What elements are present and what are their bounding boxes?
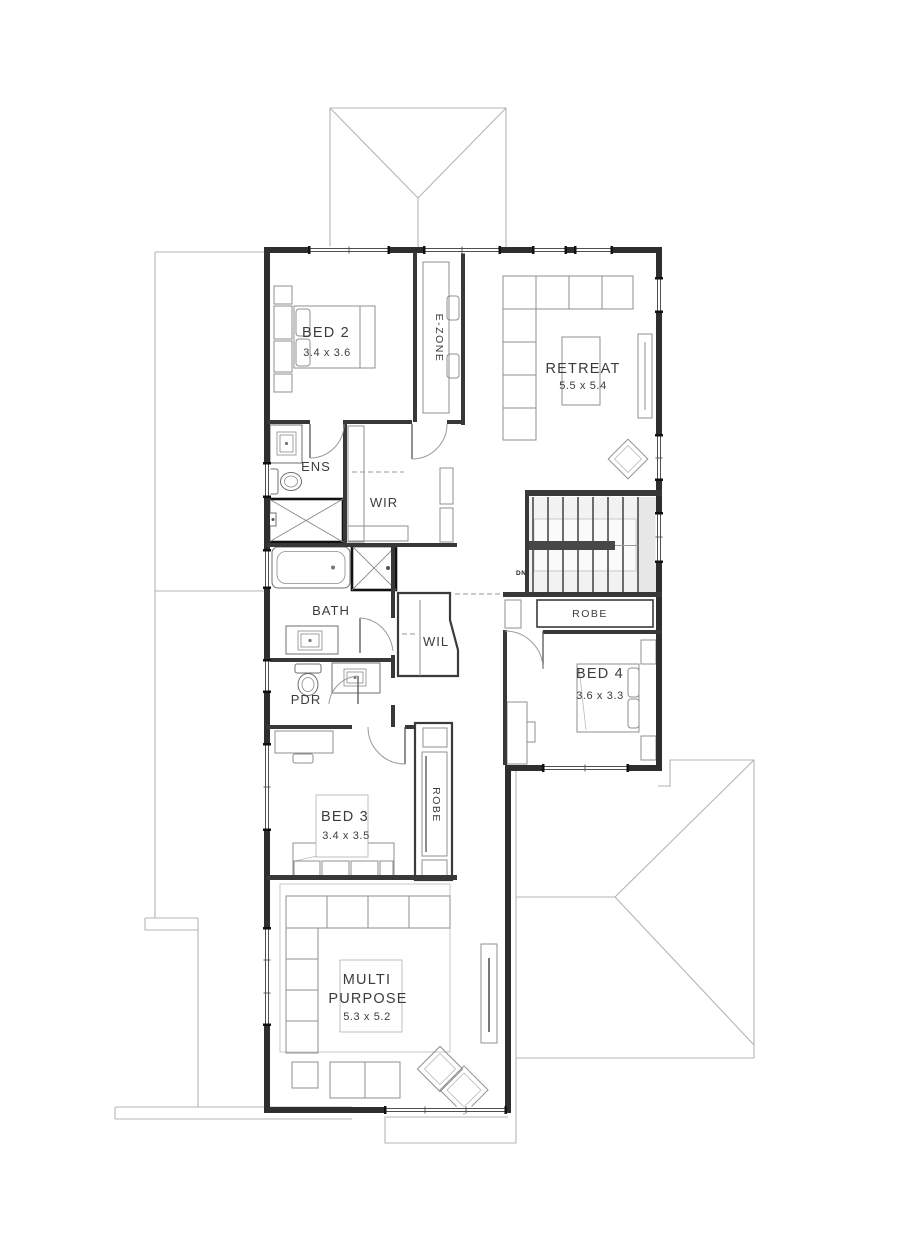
room-bed4 <box>507 640 656 764</box>
sofa-icon <box>503 276 633 309</box>
window-icon <box>655 277 663 313</box>
bed4-dims-label: 3.6 x 3.3 <box>576 690 624 702</box>
window-icon <box>263 659 271 693</box>
retreat-dims-label: 5.5 x 5.4 <box>559 380 607 392</box>
bed2-name-label: BED 2 <box>302 325 350 341</box>
robe-bed4-label: ROBE <box>572 608 608 620</box>
window-icon <box>542 764 629 772</box>
multi-dims-label: 5.3 x 5.2 <box>343 1011 391 1023</box>
window-icon <box>263 462 271 498</box>
desk-icon <box>507 702 527 764</box>
staircase: DN <box>516 497 656 592</box>
room-wir <box>348 426 453 542</box>
room-bath <box>272 546 396 654</box>
room-ens <box>267 425 343 542</box>
robe-bed3-label: ROBE <box>430 787 442 823</box>
bath-name-label: BATH <box>312 603 350 618</box>
desk-icon <box>275 731 333 753</box>
stairs-dn-label: DN <box>516 570 526 577</box>
window-icon <box>263 549 271 589</box>
window-icon <box>263 927 271 1026</box>
window-icon <box>308 246 390 254</box>
floor-plan-page: DN <box>0 0 900 1245</box>
window-icon <box>263 743 271 831</box>
bed4-name-label: BED 4 <box>576 666 624 682</box>
nightstand-icon <box>641 736 656 760</box>
window-icon <box>655 434 663 481</box>
bed3-label-box <box>316 795 368 857</box>
top-hip-roof <box>330 108 506 247</box>
floor-plan-drawing: DN <box>0 0 900 1245</box>
ezone-name-label: E-ZONE <box>433 314 445 363</box>
bathtub-icon <box>272 547 350 588</box>
window-icon <box>532 246 567 254</box>
ottoman-icon <box>292 1062 318 1088</box>
toilet-icon <box>295 664 321 673</box>
chair-icon <box>293 754 313 763</box>
nightstand-icon <box>641 640 656 664</box>
window-icon <box>655 512 663 563</box>
door-arc-icon <box>360 618 393 653</box>
wardrobe-icon <box>348 426 364 542</box>
armchair-icon <box>608 439 648 479</box>
bed3-name-label: BED 3 <box>321 809 369 825</box>
door-arc-icon <box>368 727 405 764</box>
multi-name-line1-label: MULTI <box>343 972 391 988</box>
door-arc-icon <box>505 631 543 669</box>
window-icon <box>423 246 501 254</box>
door-arc-icon <box>310 424 344 458</box>
door-arc-icon <box>412 424 447 459</box>
ens-name-label: ENS <box>301 459 331 474</box>
armchair-icon <box>417 1046 462 1091</box>
wir-name-label: WIR <box>370 495 398 510</box>
multi-name-line2-label: PURPOSE <box>328 991 407 1007</box>
room-retreat <box>503 276 652 479</box>
retreat-name-label: RETREAT <box>546 361 621 377</box>
window-icon <box>384 1106 507 1114</box>
handrail-icon <box>528 541 615 550</box>
wil-name-label: WIL <box>423 634 449 649</box>
wardrobe-icon <box>274 286 292 304</box>
room-pdr <box>295 663 380 696</box>
pdr-name-label: PDR <box>291 692 321 707</box>
window-icon <box>574 246 613 254</box>
bed2-dims-label: 3.4 x 3.6 <box>303 347 351 359</box>
bed3-dims-label: 3.4 x 3.5 <box>322 830 370 842</box>
